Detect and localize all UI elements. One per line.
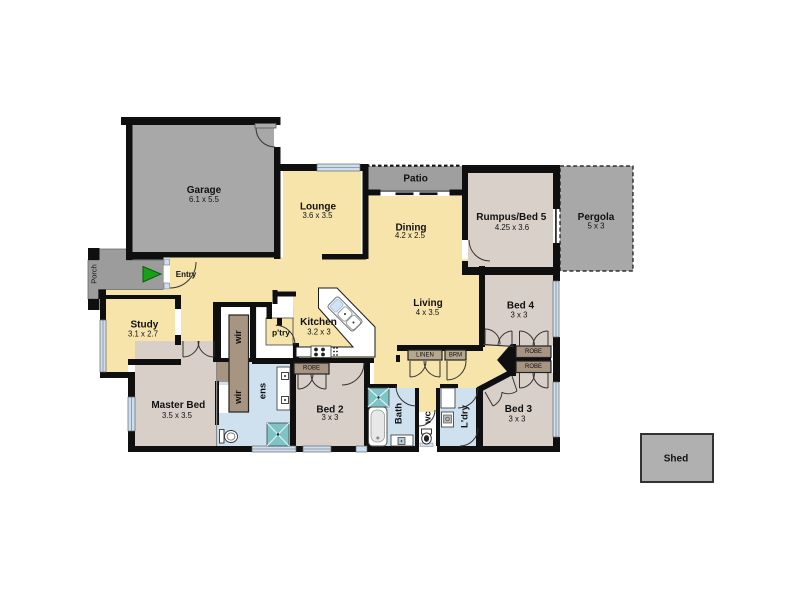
svg-text:BRM: BRM: [449, 353, 462, 359]
svg-text:3 x 3: 3 x 3: [509, 415, 526, 424]
svg-text:3 x 3: 3 x 3: [511, 311, 528, 320]
svg-text:LINEN: LINEN: [416, 353, 434, 359]
svg-text:4 x 3.5: 4 x 3.5: [416, 308, 440, 317]
svg-text:5 x 3: 5 x 3: [588, 222, 605, 231]
svg-text:wir: wir: [233, 330, 244, 345]
svg-text:6.1 x 5.5: 6.1 x 5.5: [189, 195, 220, 204]
svg-text:Shed: Shed: [664, 453, 688, 464]
svg-text:Rumpus/Bed 5: Rumpus/Bed 5: [476, 212, 546, 223]
svg-text:Bath: Bath: [394, 403, 405, 424]
svg-text:p'try: p'try: [272, 328, 290, 338]
svg-text:Bed 3: Bed 3: [505, 404, 533, 415]
svg-text:ens: ens: [258, 383, 269, 399]
svg-text:Porch: Porch: [89, 264, 98, 284]
svg-text:wir: wir: [233, 390, 244, 405]
svg-text:L'dry: L'dry: [460, 404, 471, 428]
svg-text:wc: wc: [423, 411, 434, 425]
svg-text:ROBE: ROBE: [303, 366, 320, 372]
svg-text:Master Bed: Master Bed: [151, 400, 205, 411]
svg-text:4.25 x 3.6: 4.25 x 3.6: [495, 223, 529, 232]
svg-text:3.1 x 2.7: 3.1 x 2.7: [128, 329, 158, 338]
svg-text:ROBE: ROBE: [525, 364, 542, 370]
svg-text:3.2 x 3: 3.2 x 3: [307, 328, 330, 337]
svg-text:3.5 x 3.5: 3.5 x 3.5: [162, 411, 193, 420]
svg-text:Entry: Entry: [176, 270, 197, 279]
svg-text:3.6 x 3.5: 3.6 x 3.5: [303, 211, 334, 220]
svg-text:ROBE: ROBE: [525, 349, 542, 355]
svg-text:3 x 3: 3 x 3: [322, 413, 339, 422]
svg-text:Patio: Patio: [403, 174, 427, 185]
svg-text:4.2 x 2.5: 4.2 x 2.5: [395, 231, 426, 240]
